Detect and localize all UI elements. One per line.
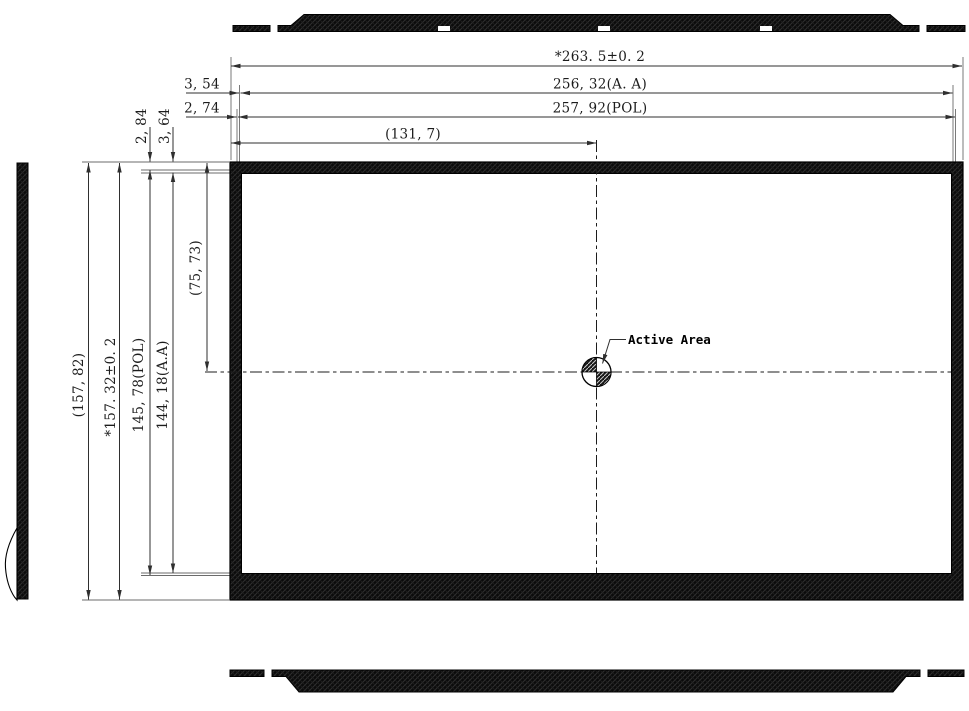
top-profile-notch — [438, 26, 450, 31]
bottom-profile-right-nub — [928, 670, 964, 677]
dim-text-aa-height: 144, 18(A.A) — [155, 340, 171, 429]
technical-drawing-canvas: Active Area *263. 5±0. 2 256, 32(A. A) 2… — [0, 0, 969, 711]
top-profile-view — [233, 15, 965, 32]
dim-text-to-center-x: (131, 7) — [385, 127, 441, 143]
active-area-label: Active Area — [628, 332, 711, 347]
center-target-symbol — [582, 358, 611, 387]
dim-text-overall-ref-height: (157, 82) — [71, 353, 87, 418]
dim-text-pol-height: 145, 78(POL) — [131, 338, 147, 433]
bottom-profile-view — [230, 670, 964, 692]
panel-outline-drawing: Active Area *263. 5±0. 2 256, 32(A. A) 2… — [0, 0, 969, 711]
dim-text-edge-to-pol-top: 2, 84 — [134, 108, 150, 144]
dim-text-edge-to-aa: 3, 54 — [184, 77, 220, 93]
dim-text-edge-to-pol: 2, 74 — [184, 101, 220, 117]
bottom-profile-body — [272, 670, 920, 692]
dim-text-to-center-y: (75, 73) — [188, 240, 204, 296]
dim-text-edge-to-aa-top: 3, 64 — [157, 108, 173, 144]
left-profile-view — [5, 163, 28, 600]
bottom-profile-left-nub — [230, 670, 264, 677]
dim-text-overall-height: *157. 32±0. 2 — [103, 337, 119, 436]
dim-text-overall-width: *263. 5±0. 2 — [555, 49, 645, 65]
dim-text-aa-width: 256, 32(A. A) — [553, 77, 647, 93]
top-profile-right-nub — [927, 26, 965, 32]
top-profile-notch — [598, 26, 610, 31]
top-profile-notch — [760, 26, 772, 31]
left-profile-flex-fold — [5, 528, 17, 600]
dim-text-pol-width: 257, 92(POL) — [553, 101, 648, 117]
left-profile-bar — [17, 163, 28, 599]
top-profile-left-nub — [233, 26, 270, 32]
